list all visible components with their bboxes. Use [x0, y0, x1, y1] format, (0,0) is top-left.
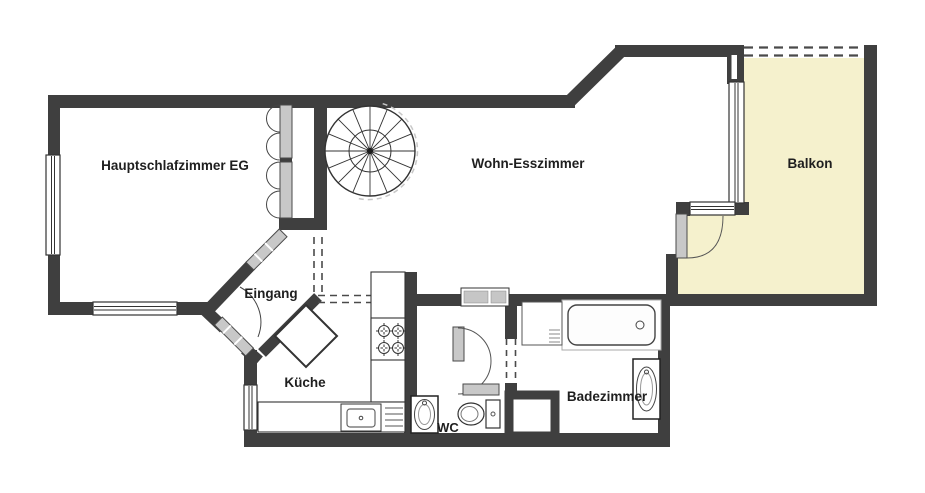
balcony-railing [744, 45, 864, 58]
bedroom-label: Hauptschlafzimmer EG [101, 158, 249, 173]
bedroom-door [246, 229, 287, 270]
bathroom-door-opening [503, 339, 519, 383]
kitchen-label: Küche [284, 375, 326, 390]
bathtub-icon [562, 300, 661, 350]
wc-sink-icon [411, 396, 438, 433]
washer-icon [522, 302, 562, 345]
bedroom-bottom-window [93, 302, 177, 315]
floor-plan: Hauptschlafzimmer EG Wohn-Esszimmer Balk… [0, 0, 925, 493]
dining-table-icon [275, 305, 337, 367]
balcony-window-vertical [729, 82, 744, 203]
bathroom-label: Badezimmer [567, 389, 648, 404]
bedroom-left-window [46, 155, 60, 255]
balcony-label: Balkon [787, 156, 832, 171]
stove-icon [371, 318, 406, 360]
closet-doors [267, 105, 293, 218]
toilet-icon [458, 400, 500, 428]
balcony-window-horizontal [690, 202, 735, 215]
living-label: Wohn-Esszimmer [471, 156, 585, 171]
entrance-label: Eingang [244, 286, 297, 301]
bathroom-door [463, 384, 499, 395]
pier-window-slot [732, 55, 738, 79]
shower-icon [509, 395, 555, 436]
balcony-floor [678, 56, 866, 296]
wc-label: WC [437, 420, 459, 435]
spiral-staircase-icon [325, 104, 417, 200]
hall-closet-icon [461, 288, 509, 306]
kitchen-window [244, 385, 257, 430]
